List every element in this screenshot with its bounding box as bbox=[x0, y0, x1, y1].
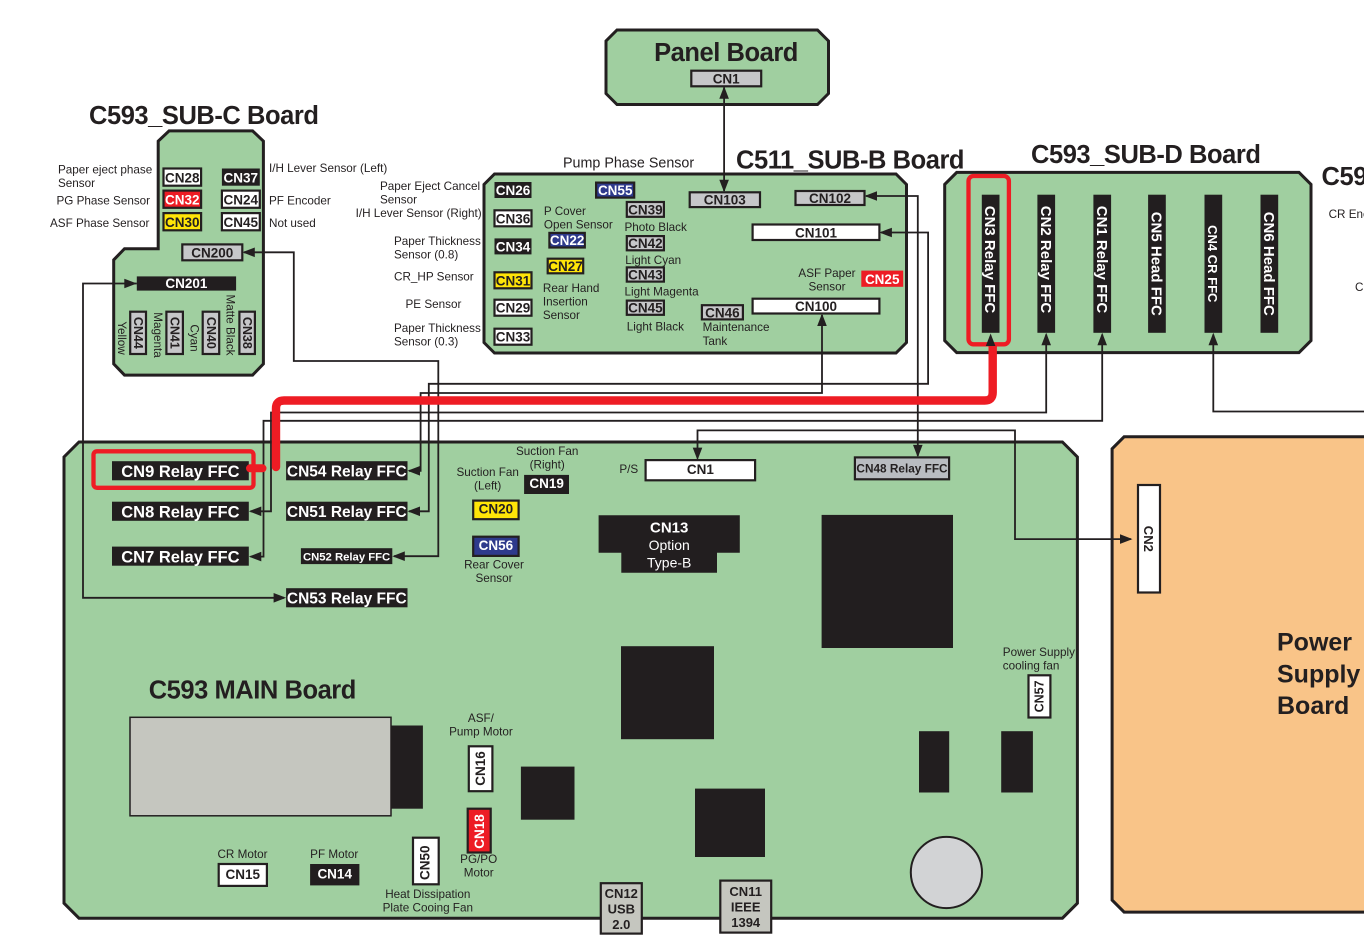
svg-text:Heat Dissipation: Heat Dissipation bbox=[385, 888, 470, 901]
svg-text:CN6 Head FFC: CN6 Head FFC bbox=[1260, 212, 1277, 316]
svg-text:CN51 Relay FFC: CN51 Relay FFC bbox=[287, 504, 407, 521]
svg-text:P Cover: P Cover bbox=[544, 205, 586, 218]
svg-text:CN20: CN20 bbox=[479, 501, 514, 516]
svg-text:CN37: CN37 bbox=[224, 171, 259, 186]
svg-text:CN26: CN26 bbox=[496, 183, 531, 198]
svg-text:Board: Board bbox=[1277, 692, 1349, 720]
svg-text:CN103: CN103 bbox=[704, 193, 747, 208]
svg-text:Sensor: Sensor bbox=[380, 194, 417, 207]
svg-text:CR_HP Sensor: CR_HP Sensor bbox=[394, 271, 474, 284]
svg-text:CN11: CN11 bbox=[729, 884, 762, 899]
svg-text:Light Cyan: Light Cyan bbox=[625, 254, 681, 267]
svg-text:CN46: CN46 bbox=[705, 305, 740, 320]
svg-text:CN40: CN40 bbox=[204, 317, 218, 349]
svg-text:CN1 Relay FFC: CN1 Relay FFC bbox=[1093, 206, 1110, 314]
svg-text:CR Motor: CR Motor bbox=[217, 848, 267, 861]
svg-text:CN41: CN41 bbox=[168, 317, 182, 349]
svg-text:IEEE: IEEE bbox=[731, 899, 761, 914]
svg-text:CN56: CN56 bbox=[479, 538, 514, 553]
svg-text:C511_SUB-B Board: C511_SUB-B Board bbox=[736, 147, 964, 175]
svg-text:Paper eject phase: Paper eject phase bbox=[58, 164, 152, 177]
svg-text:I/H Lever Sensor (Left): I/H Lever Sensor (Left) bbox=[269, 162, 387, 175]
svg-text:CN25: CN25 bbox=[865, 272, 900, 287]
svg-text:CN24: CN24 bbox=[224, 193, 259, 208]
svg-text:CN50: CN50 bbox=[417, 846, 432, 881]
svg-text:USB: USB bbox=[608, 901, 635, 916]
svg-text:CN1: CN1 bbox=[687, 462, 714, 477]
svg-text:CN101: CN101 bbox=[795, 226, 838, 241]
svg-text:CN53 Relay FFC: CN53 Relay FFC bbox=[287, 591, 407, 608]
svg-text:Suction Fan: Suction Fan bbox=[516, 445, 578, 458]
svg-text:Rear Hand: Rear Hand bbox=[543, 282, 600, 295]
svg-text:Plate Cooing Fan: Plate Cooing Fan bbox=[383, 902, 473, 915]
svg-text:Light Black: Light Black bbox=[627, 320, 684, 333]
svg-text:CN2 Relay FFC: CN2 Relay FFC bbox=[1037, 206, 1054, 314]
svg-text:Option: Option bbox=[649, 537, 690, 553]
svg-text:CN54 Relay FFC: CN54 Relay FFC bbox=[287, 464, 407, 481]
svg-text:Sensor: Sensor bbox=[58, 177, 95, 190]
svg-text:ASF/: ASF/ bbox=[468, 712, 495, 725]
svg-text:Sensor: Sensor bbox=[543, 309, 580, 322]
svg-text:Maintenance: Maintenance bbox=[703, 321, 770, 334]
svg-text:CN33: CN33 bbox=[496, 330, 531, 345]
svg-text:PF Motor: PF Motor bbox=[310, 848, 358, 861]
svg-text:CN22: CN22 bbox=[550, 233, 585, 248]
svg-text:Panel Board: Panel Board bbox=[654, 39, 798, 67]
svg-text:CN52 Relay FFC: CN52 Relay FFC bbox=[303, 551, 390, 563]
svg-text:CN18: CN18 bbox=[472, 814, 487, 849]
svg-text:CN1: CN1 bbox=[713, 72, 740, 87]
svg-text:Sensor: Sensor bbox=[475, 572, 512, 585]
svg-text:PF Encoder: PF Encoder bbox=[269, 195, 331, 208]
svg-text:CN13: CN13 bbox=[650, 519, 688, 536]
svg-text:Cyan: Cyan bbox=[187, 324, 200, 351]
svg-text:P/S: P/S bbox=[619, 463, 638, 476]
svg-text:Insertion: Insertion bbox=[543, 296, 588, 309]
svg-text:PG/PO: PG/PO bbox=[460, 853, 497, 866]
svg-text:Suction Fan: Suction Fan bbox=[457, 466, 519, 479]
svg-text:Paper Eject Cancel: Paper Eject Cancel bbox=[380, 180, 480, 193]
svg-text:CN31: CN31 bbox=[496, 273, 531, 288]
svg-text:PG Phase Sensor: PG Phase Sensor bbox=[57, 195, 151, 208]
svg-text:C593 MAIN Board: C593 MAIN Board bbox=[149, 677, 356, 705]
svg-text:CN38: CN38 bbox=[240, 317, 254, 349]
svg-text:Sensor (0.8): Sensor (0.8) bbox=[394, 249, 458, 262]
svg-text:CN4 CR FFC: CN4 CR FFC bbox=[1205, 225, 1220, 303]
svg-text:CN2: CN2 bbox=[1141, 526, 1156, 552]
svg-text:CN45: CN45 bbox=[224, 215, 259, 230]
svg-text:Matte Black: Matte Black bbox=[224, 294, 237, 355]
svg-text:CN200: CN200 bbox=[191, 245, 233, 260]
svg-text:Sensor: Sensor bbox=[808, 281, 845, 294]
svg-text:CN100: CN100 bbox=[795, 299, 837, 314]
svg-text:CN45: CN45 bbox=[628, 301, 663, 316]
svg-text:CN201: CN201 bbox=[165, 276, 208, 291]
svg-text:Tank: Tank bbox=[703, 335, 728, 348]
svg-text:CN32: CN32 bbox=[165, 193, 200, 208]
svg-text:CN42: CN42 bbox=[628, 236, 663, 251]
svg-text:Paper Thickness: Paper Thickness bbox=[394, 235, 481, 248]
svg-text:C593_SUB-D Board: C593_SUB-D Board bbox=[1031, 141, 1260, 169]
svg-text:CN57: CN57 bbox=[1032, 680, 1046, 712]
svg-text:CN16: CN16 bbox=[473, 751, 488, 786]
svg-text:Light Magenta: Light Magenta bbox=[625, 286, 700, 299]
svg-text:CN55: CN55 bbox=[598, 183, 633, 198]
svg-text:CN14: CN14 bbox=[317, 867, 352, 882]
svg-text:C593_SUB-C Board: C593_SUB-C Board bbox=[89, 102, 318, 130]
svg-text:Yellow: Yellow bbox=[115, 321, 128, 355]
svg-text:C: C bbox=[1355, 281, 1363, 294]
svg-text:CN9 Relay FFC: CN9 Relay FFC bbox=[121, 463, 239, 481]
svg-text:Sensor (0.3): Sensor (0.3) bbox=[394, 336, 458, 349]
svg-text:Photo Black: Photo Black bbox=[625, 221, 688, 234]
svg-text:CN19: CN19 bbox=[529, 476, 564, 491]
svg-text:Pump Motor: Pump Motor bbox=[449, 726, 513, 739]
svg-text:CN27: CN27 bbox=[548, 259, 583, 274]
svg-text:1394: 1394 bbox=[731, 915, 761, 930]
svg-text:ASF Paper: ASF Paper bbox=[798, 267, 855, 280]
svg-text:C59: C59 bbox=[1322, 163, 1364, 191]
svg-text:CN34: CN34 bbox=[496, 239, 531, 254]
svg-text:CN48 Relay FFC: CN48 Relay FFC bbox=[856, 462, 948, 476]
svg-text:Magenta: Magenta bbox=[151, 312, 164, 358]
svg-text:I/H Lever Sensor (Right): I/H Lever Sensor (Right) bbox=[356, 207, 482, 220]
svg-text:(Left): (Left) bbox=[474, 480, 501, 493]
svg-text:CN36: CN36 bbox=[496, 211, 531, 226]
svg-text:CN30: CN30 bbox=[165, 215, 200, 230]
svg-text:Motor: Motor bbox=[464, 867, 494, 880]
svg-text:Type-B: Type-B bbox=[647, 554, 691, 570]
svg-text:Pump Phase Sensor: Pump Phase Sensor bbox=[563, 156, 694, 172]
svg-text:Power Supply: Power Supply bbox=[1003, 646, 1075, 659]
svg-text:CN43: CN43 bbox=[628, 268, 663, 283]
svg-text:CN3 Relay FFC: CN3 Relay FFC bbox=[981, 206, 998, 314]
svg-text:CN28: CN28 bbox=[165, 171, 200, 186]
svg-text:Open Sensor: Open Sensor bbox=[544, 219, 613, 232]
svg-text:Paper Thickness: Paper Thickness bbox=[394, 322, 481, 335]
svg-text:Power: Power bbox=[1277, 629, 1352, 657]
svg-text:CN12: CN12 bbox=[605, 886, 638, 901]
svg-text:Supply: Supply bbox=[1277, 661, 1360, 689]
svg-text:(Right): (Right) bbox=[530, 459, 565, 472]
svg-text:Not used: Not used bbox=[269, 217, 316, 230]
svg-text:PE Sensor: PE Sensor bbox=[406, 298, 462, 311]
svg-text:ASF Phase Sensor: ASF Phase Sensor bbox=[50, 217, 150, 230]
svg-text:CN8 Relay FFC: CN8 Relay FFC bbox=[121, 503, 239, 521]
svg-text:CN44: CN44 bbox=[131, 317, 145, 349]
svg-text:CR Enc: CR Enc bbox=[1329, 208, 1364, 221]
svg-text:CN29: CN29 bbox=[496, 301, 531, 316]
svg-text:CN15: CN15 bbox=[226, 867, 261, 882]
svg-text:CN102: CN102 bbox=[809, 191, 851, 206]
svg-text:Rear Cover: Rear Cover bbox=[464, 559, 524, 572]
svg-text:CN39: CN39 bbox=[628, 202, 663, 217]
svg-text:cooling fan: cooling fan bbox=[1003, 660, 1060, 673]
svg-text:CN5 Head FFC: CN5 Head FFC bbox=[1148, 212, 1165, 316]
svg-text:2.0: 2.0 bbox=[612, 917, 630, 932]
svg-text:CN7 Relay FFC: CN7 Relay FFC bbox=[121, 548, 239, 566]
